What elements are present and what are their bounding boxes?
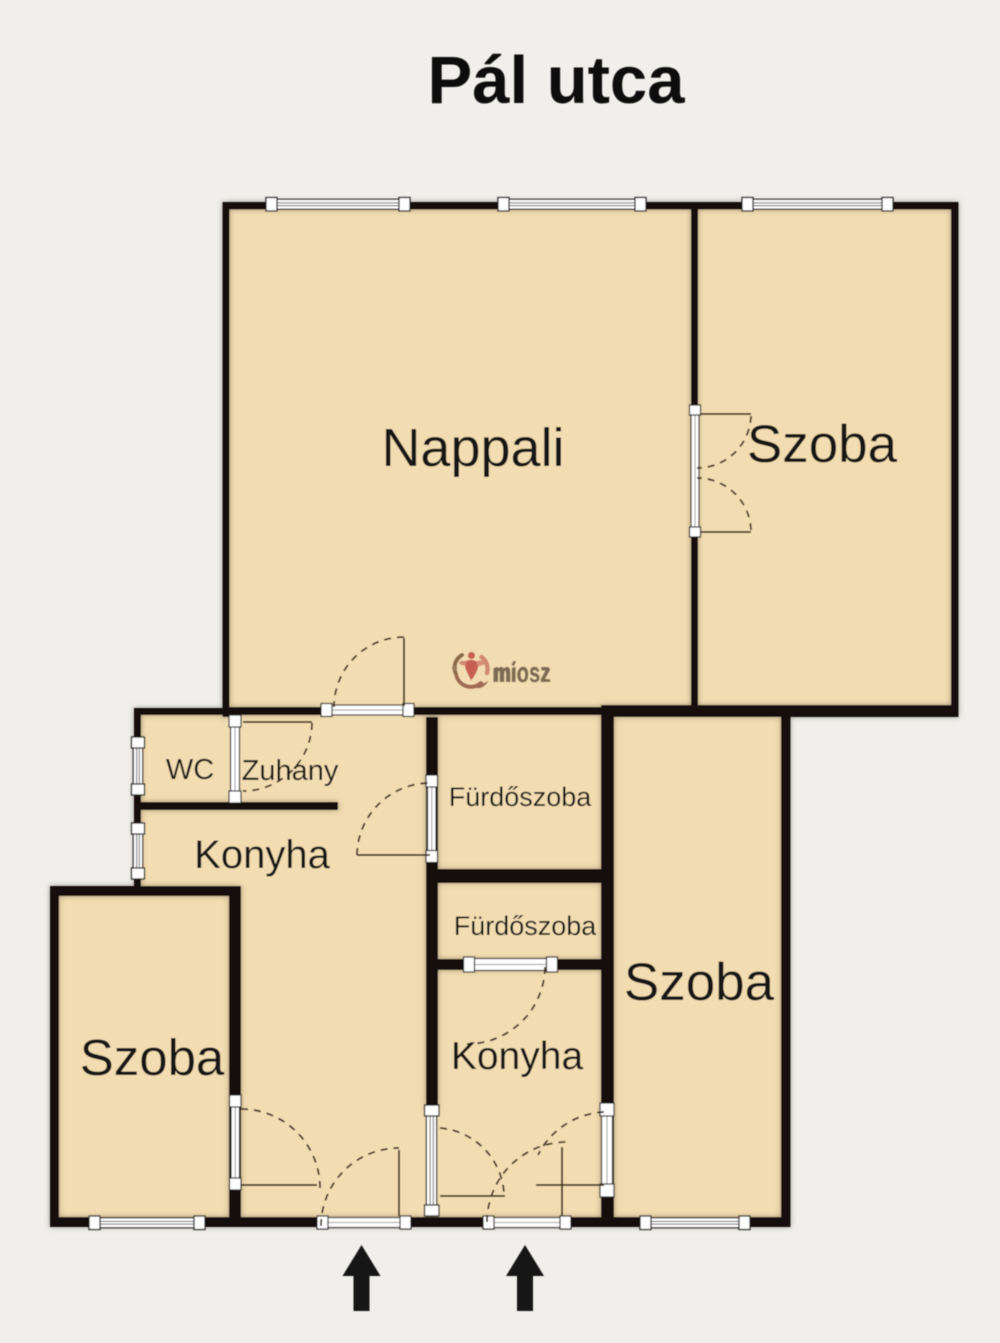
svg-text:Szoba: Szoba xyxy=(747,415,898,474)
svg-text:Fürdőszoba: Fürdőszoba xyxy=(454,911,598,941)
svg-text:Fürdőszoba: Fürdőszoba xyxy=(449,782,593,812)
svg-text:Nappali: Nappali xyxy=(381,418,564,478)
svg-text:Konyha: Konyha xyxy=(194,833,330,877)
svg-text:Szoba: Szoba xyxy=(624,953,775,1012)
svg-text:Pál utca: Pál utca xyxy=(428,43,686,118)
svg-text:WC: WC xyxy=(166,754,214,786)
svg-text:miosz: miosz xyxy=(492,659,551,688)
svg-text:Szoba: Szoba xyxy=(80,1029,225,1086)
svg-text:Konyha: Konyha xyxy=(451,1035,584,1078)
svg-text:Zuhany: Zuhany xyxy=(242,755,339,787)
